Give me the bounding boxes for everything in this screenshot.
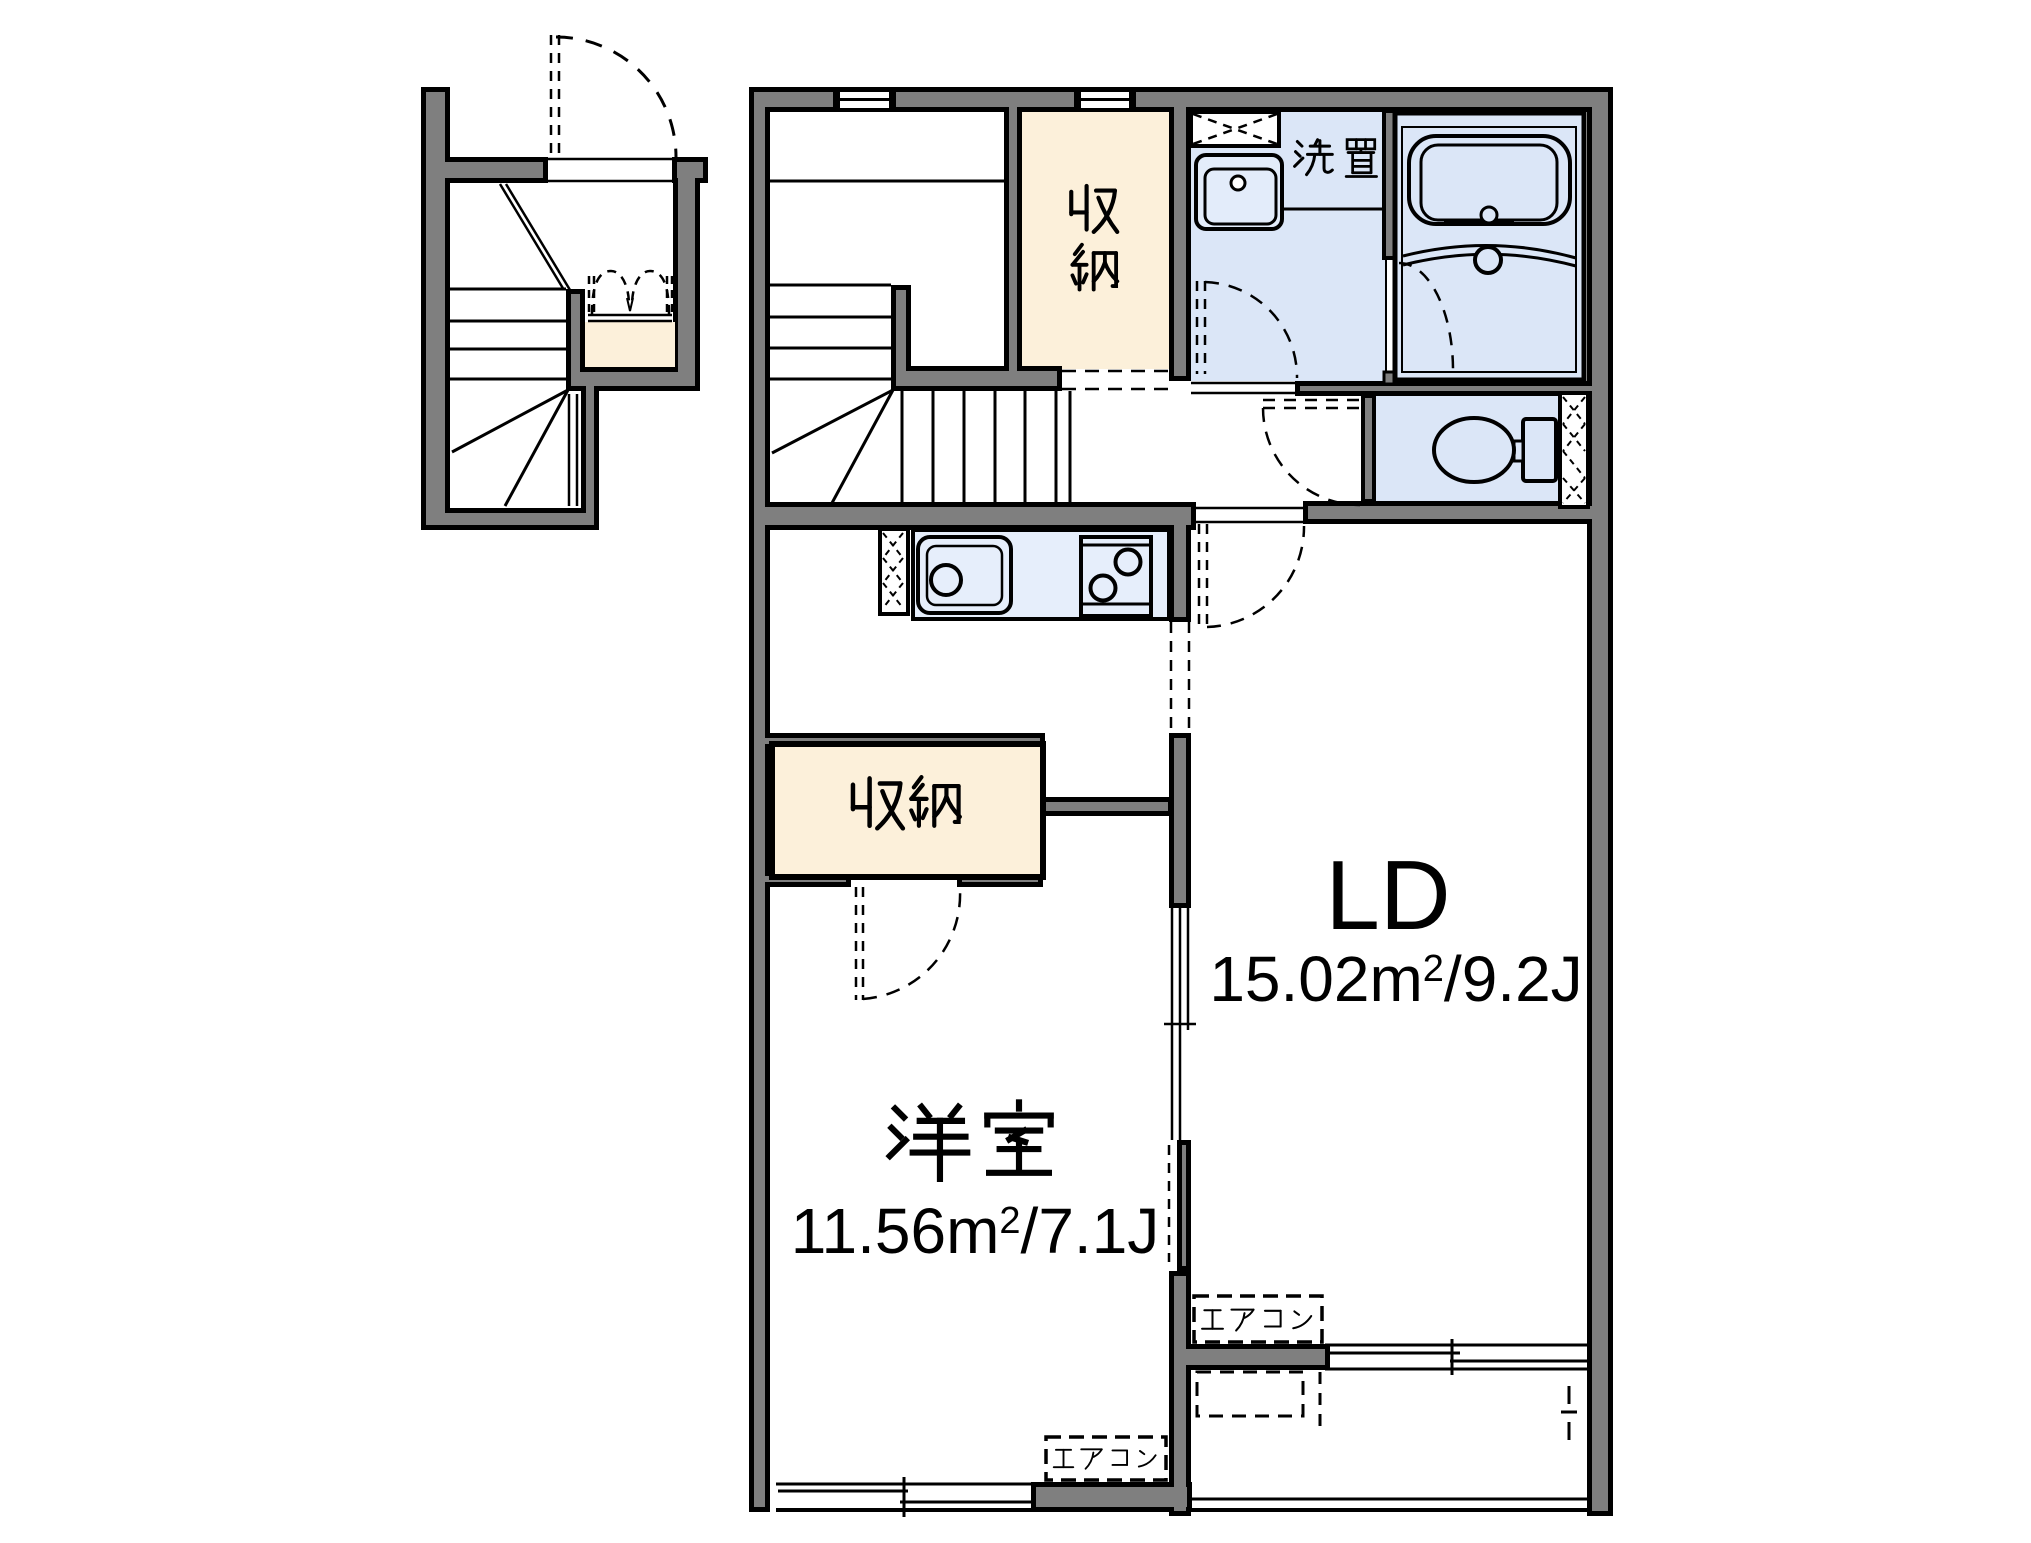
svg-text:15.02m2/9.2J: 15.02m2/9.2J	[1209, 943, 1582, 1015]
svg-text:LD: LD	[1325, 840, 1450, 950]
svg-text:11.56m2/7.1J: 11.56m2/7.1J	[791, 1195, 1160, 1267]
